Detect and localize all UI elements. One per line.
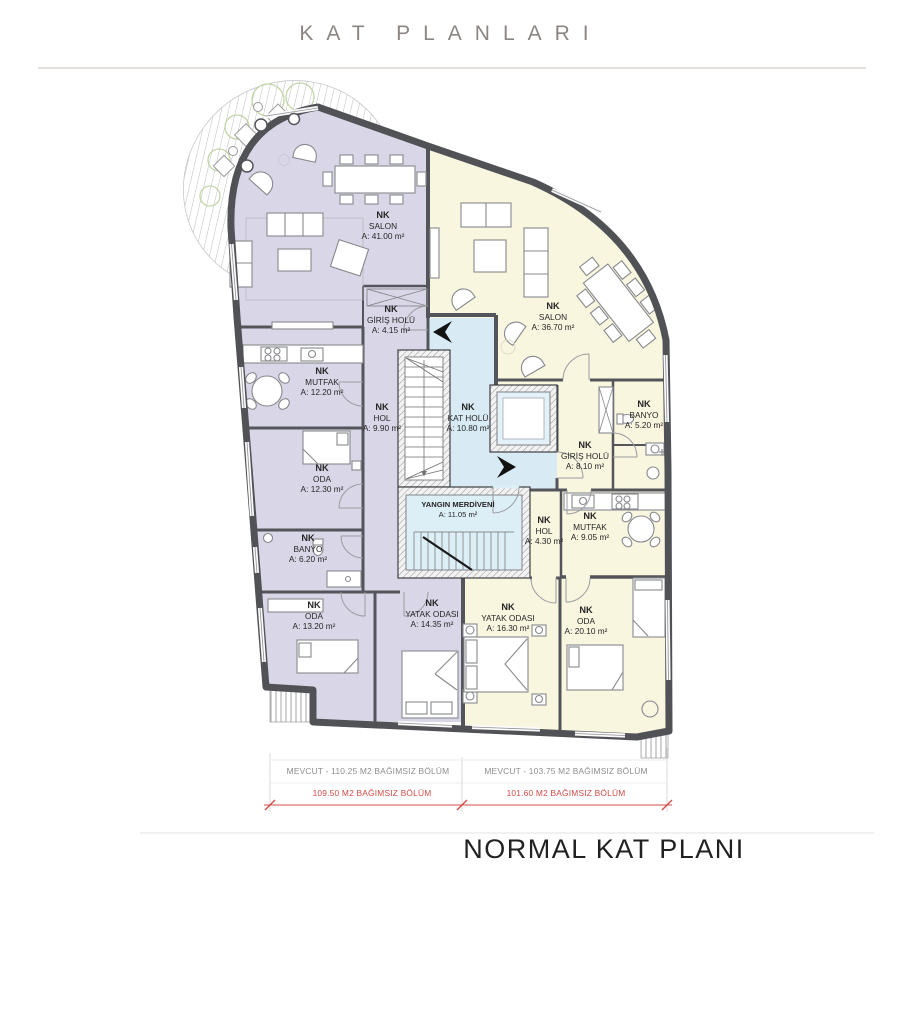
dimension-lines (264, 748, 672, 812)
dim-new-right: 101.60 M2 BAĞIMSIZ BÖLÜM (507, 788, 626, 798)
room-code: NK (367, 304, 415, 315)
room-area: A: 9.05 m² (571, 532, 609, 542)
room-name: KAT HOLÜ (447, 413, 490, 423)
room-area: A: 13.20 m² (293, 621, 336, 631)
room-name: BANYO (289, 544, 327, 554)
room-label-oda-left-2: NK ODA A: 13.20 m² (293, 600, 336, 631)
room-name: YANGIN MERDİVENİ (421, 500, 494, 510)
room-area: A: 41.00 m² (362, 231, 405, 241)
room-code: NK (301, 366, 344, 377)
room-code: NK (561, 440, 609, 451)
floor-plan-page: KAT PLANLARI NORMAL KAT PLANI NK SALON A… (0, 0, 901, 1030)
plan-title: NORMAL KAT PLANI (463, 834, 745, 865)
room-area: A: 14.35 m² (405, 619, 458, 629)
dim-existing-right: MEVCUT - 103.75 M2 BAĞIMSIZ BÖLÜM (484, 766, 647, 776)
room-code: NK (289, 533, 327, 544)
room-name: SALON (532, 312, 575, 322)
room-name: HOL (525, 526, 563, 536)
room-label-yatak-odasi-right: NK YATAK ODASI A: 16.30 m² (481, 602, 534, 633)
room-label-oda-right: NK ODA A: 20.10 m² (565, 605, 608, 636)
room-code: NK (363, 402, 401, 413)
room-name: MUTFAK (571, 522, 609, 532)
room-label-banyo-right: NK BANYO A: 5.20 m² (625, 399, 663, 430)
room-name: GİRİŞ HOLÜ (561, 451, 609, 461)
room-code: NK (405, 598, 458, 609)
room-label-yatak-odasi-left: NK YATAK ODASI A: 14.35 m² (405, 598, 458, 629)
room-area: A: 11.05 m² (421, 510, 494, 520)
room-code: NK (481, 602, 534, 613)
room-name: SALON (362, 221, 405, 231)
room-label-mutfak-right: NK MUTFAK A: 9.05 m² (571, 511, 609, 542)
room-label-banyo-left: NK BANYO A: 6.20 m² (289, 533, 327, 564)
room-area: A: 4.30 m² (525, 536, 563, 546)
room-code: NK (293, 600, 336, 611)
room-area: A: 12.20 m² (301, 387, 344, 397)
room-area: A: 4.15 m² (367, 325, 415, 335)
room-label-yangin-merdiveni: YANGIN MERDİVENİ A: 11.05 m² (421, 500, 494, 520)
room-code: NK (532, 301, 575, 312)
room-name: YATAK ODASI (405, 609, 458, 619)
room-label-hol-right: NK HOL A: 4.30 m² (525, 515, 563, 546)
room-area: A: 20.10 m² (565, 626, 608, 636)
room-label-giris-holu-right: NK GİRİŞ HOLÜ A: 8.10 m² (561, 440, 609, 471)
room-label-salon-left: NK SALON A: 41.00 m² (362, 210, 405, 241)
dim-new-left: 109.50 M2 BAĞIMSIZ BÖLÜM (313, 788, 432, 798)
room-code: NK (571, 511, 609, 522)
room-label-oda-left-1: NK ODA A: 12.30 m² (301, 463, 344, 494)
room-area: A: 16.30 m² (481, 623, 534, 633)
main-staircase (398, 350, 450, 487)
room-name: GİRİŞ HOLÜ (367, 315, 415, 325)
room-name: BANYO (625, 410, 663, 420)
room-area: A: 12.30 m² (301, 484, 344, 494)
room-name: ODA (293, 611, 336, 621)
dim-existing-left: MEVCUT - 110.25 M2 BAĞIMSIZ BÖLÜM (287, 766, 450, 776)
elevator (490, 385, 557, 452)
room-area: A: 5.20 m² (625, 420, 663, 430)
room-name: HOL (363, 413, 401, 423)
room-label-kat-holu: NK KAT HOLÜ A: 10.80 m² (447, 402, 490, 433)
room-name: MUTFAK (301, 377, 344, 387)
room-area: A: 6.20 m² (289, 554, 327, 564)
page-title: KAT PLANLARI (0, 22, 901, 46)
room-name: ODA (301, 474, 344, 484)
room-name: ODA (565, 616, 608, 626)
room-area: A: 36.70 m² (532, 322, 575, 332)
room-label-mutfak-left: NK MUTFAK A: 12.20 m² (301, 366, 344, 397)
room-area: A: 10.80 m² (447, 423, 490, 433)
room-area: A: 9.90 m² (363, 423, 401, 433)
room-name: YATAK ODASI (481, 613, 534, 623)
room-code: NK (565, 605, 608, 616)
room-area: A: 8.10 m² (561, 461, 609, 471)
room-code: NK (525, 515, 563, 526)
room-label-hol-left: NK HOL A: 9.90 m² (363, 402, 401, 433)
room-code: NK (362, 210, 405, 221)
room-label-giris-holu-left: NK GİRİŞ HOLÜ A: 4.15 m² (367, 304, 415, 335)
room-code: NK (625, 399, 663, 410)
room-code: NK (447, 402, 490, 413)
room-code: NK (301, 463, 344, 474)
room-label-salon-right: NK SALON A: 36.70 m² (532, 301, 575, 332)
light-well-left (270, 690, 311, 722)
